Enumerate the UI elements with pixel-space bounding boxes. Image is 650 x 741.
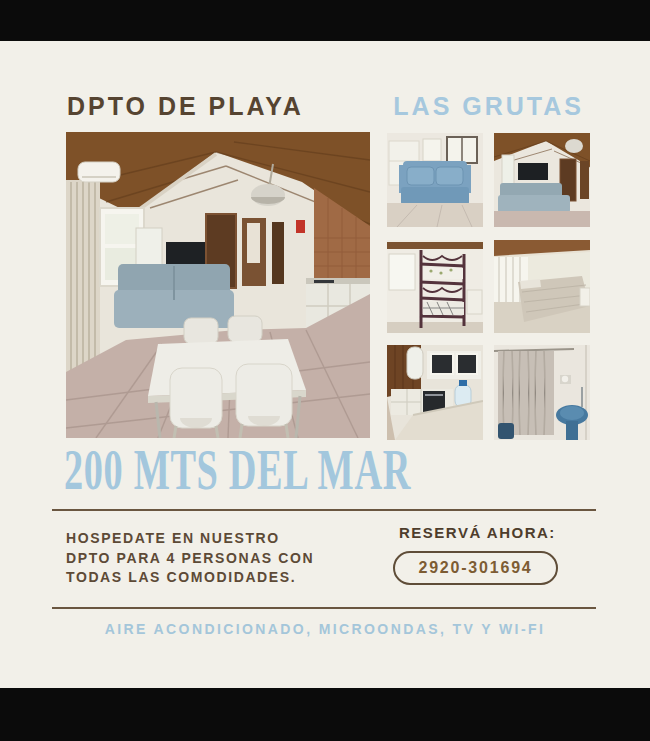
flyer-canvas: DPTO DE PLAYA LAS GRUTAS bbox=[0, 41, 650, 688]
living-room-illustration bbox=[494, 133, 590, 227]
divider-top bbox=[52, 509, 596, 511]
amenities-text: AIRE ACONDICIONADO, MICROONDAS, TV Y WI-… bbox=[0, 621, 650, 637]
divider-bottom bbox=[52, 607, 596, 609]
kitchen-photo bbox=[387, 345, 483, 440]
kitchen-illustration bbox=[387, 345, 483, 440]
flyer: DPTO DE PLAYA LAS GRUTAS bbox=[0, 0, 650, 741]
bathroom-photo bbox=[494, 345, 590, 440]
description-line-3: TODAS LAS COMODIDADES. bbox=[66, 568, 314, 588]
flyer-title: DPTO DE PLAYA bbox=[67, 92, 304, 121]
bottom-letterbox-bar bbox=[0, 688, 650, 741]
reserve-now-label: RESERVÁ AHORA: bbox=[399, 524, 556, 541]
distance-headline-text: 200 MTS DEL MAR bbox=[64, 440, 411, 500]
phone-number: 2920-301694 bbox=[418, 559, 532, 577]
living-room-tv-photo bbox=[494, 133, 590, 227]
blue-sofa-photo bbox=[387, 133, 483, 227]
bunk-bed-illustration bbox=[387, 240, 483, 333]
bathroom-illustration bbox=[494, 345, 590, 440]
double-bed-bedroom-photo bbox=[494, 240, 590, 333]
description-text: HOSPEDATE EN NUESTRO DPTO PARA 4 PERSONA… bbox=[66, 529, 314, 588]
phone-button[interactable]: 2920-301694 bbox=[393, 551, 558, 585]
distance-headline: 200 MTS DEL MAR bbox=[64, 440, 590, 500]
description-line-1: HOSPEDATE EN NUESTRO bbox=[66, 529, 314, 549]
location-title: LAS GRUTAS bbox=[393, 92, 584, 121]
bedroom-illustration bbox=[494, 240, 590, 333]
description-line-2: DPTO PARA 4 PERSONAS CON bbox=[66, 549, 314, 569]
dining-room-illustration bbox=[66, 132, 370, 438]
main-dining-kitchen-photo bbox=[66, 132, 370, 438]
bunk-bed-photo bbox=[387, 240, 483, 333]
blue-sofa-illustration bbox=[387, 133, 483, 227]
top-letterbox-bar bbox=[0, 0, 650, 41]
